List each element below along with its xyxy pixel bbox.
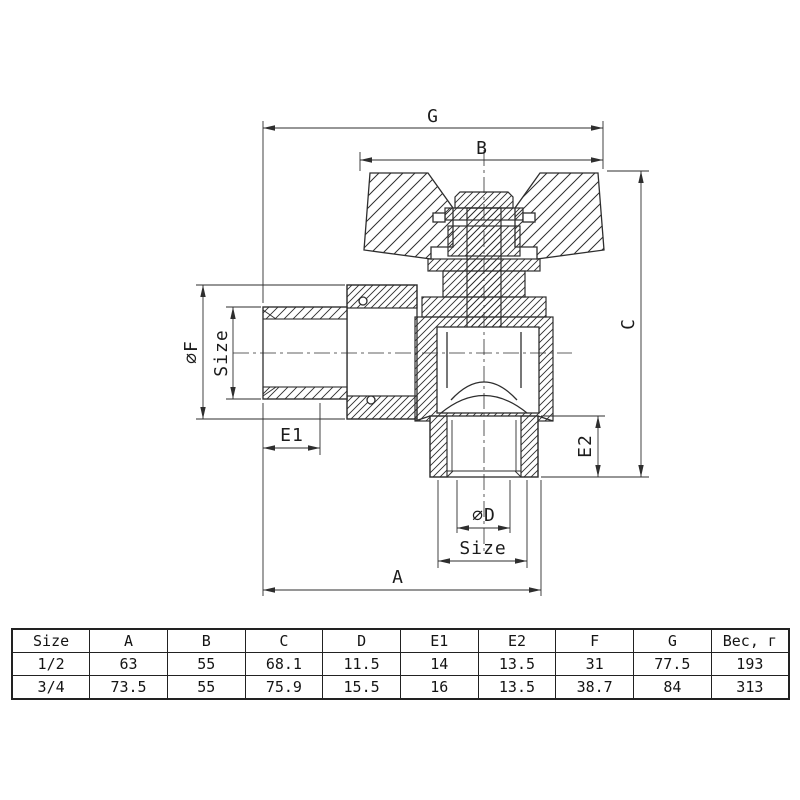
seal-ring-top [359, 297, 367, 305]
table-cell: 1/2 [12, 653, 90, 676]
dimension-b-label: B [476, 138, 488, 159]
table-cell: 13.5 [478, 653, 556, 676]
table-cell: 38.7 [556, 676, 634, 700]
table-cell: 3/4 [12, 676, 90, 700]
dimension-g-label: G [427, 106, 439, 127]
body-cavity [437, 327, 539, 413]
table-header-cell: Вес, г [711, 629, 789, 653]
table-cell: 31 [556, 653, 634, 676]
table-cell: 55 [167, 676, 245, 700]
table-cell: 13.5 [478, 676, 556, 700]
dimension-E1: E1 [263, 403, 320, 455]
table-cell: 11.5 [323, 653, 401, 676]
dimension-phiD: ∅D [457, 480, 510, 533]
dimension-B: B [360, 138, 603, 171]
table-header-cell: E2 [478, 629, 556, 653]
table-cell: 15.5 [323, 676, 401, 700]
dimension-c-label: C [618, 318, 639, 330]
dimension-e2-label: E2 [575, 434, 596, 458]
table-row: 1/2 63 55 68.1 11.5 14 13.5 31 77.5 193 [12, 653, 789, 676]
table-header-cell: B [167, 629, 245, 653]
table-cell: 68.1 [245, 653, 323, 676]
table-cell: 193 [711, 653, 789, 676]
union-nut [347, 285, 417, 419]
table-cell: 14 [400, 653, 478, 676]
table-cell: 73.5 [90, 676, 168, 700]
table-cell: 77.5 [634, 653, 712, 676]
dimension-size-left-label: Size [211, 329, 232, 376]
page: G B C E2 ∅F Size [0, 0, 800, 800]
table-row: 3/4 73.5 55 75.9 15.5 16 13.5 38.7 84 31… [12, 676, 789, 700]
seal-ring-bottom [367, 396, 375, 404]
table-header-cell: C [245, 629, 323, 653]
dimension-a-label: A [392, 567, 404, 588]
valve-technical-drawing: G B C E2 ∅F Size [0, 0, 800, 622]
table-header-cell: F [556, 629, 634, 653]
table-cell: 84 [634, 676, 712, 700]
table-cell: 63 [90, 653, 168, 676]
table-cell: 16 [400, 676, 478, 700]
table-cell: 313 [711, 676, 789, 700]
table-header-cell: Size [12, 629, 90, 653]
table-header-row: Size A B C D E1 E2 F G Вес, г [12, 629, 789, 653]
table-header-cell: G [634, 629, 712, 653]
dimension-size-bottom-label: Size [459, 538, 506, 559]
table-header-cell: A [90, 629, 168, 653]
table-header-cell: E1 [400, 629, 478, 653]
dimension-phi-f-label: ∅F [181, 340, 202, 364]
dimension-phi-d-label: ∅D [472, 505, 496, 526]
table-cell: 55 [167, 653, 245, 676]
dimension-E2: E2 [541, 416, 605, 477]
table-header-cell: D [323, 629, 401, 653]
dimension-table: Size A B C D E1 E2 F G Вес, г 1/2 63 55 … [11, 628, 790, 700]
table-cell: 75.9 [245, 676, 323, 700]
dimension-e1-label: E1 [280, 425, 304, 446]
